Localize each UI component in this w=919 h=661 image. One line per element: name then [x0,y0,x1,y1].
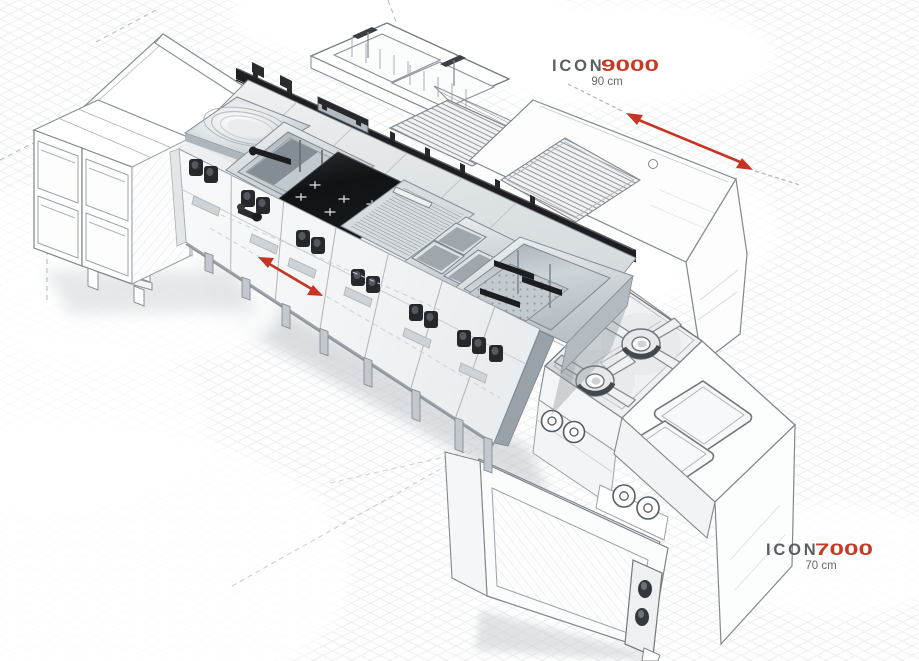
svg-text:90 cm: 90 cm [591,76,622,88]
svg-text:ICON: ICON [766,541,818,559]
svg-text:70 cm: 70 cm [805,560,836,572]
svg-text:7000: 7000 [815,541,873,559]
svg-text:9000: 9000 [601,57,659,75]
svg-text:ICON: ICON [552,57,604,75]
